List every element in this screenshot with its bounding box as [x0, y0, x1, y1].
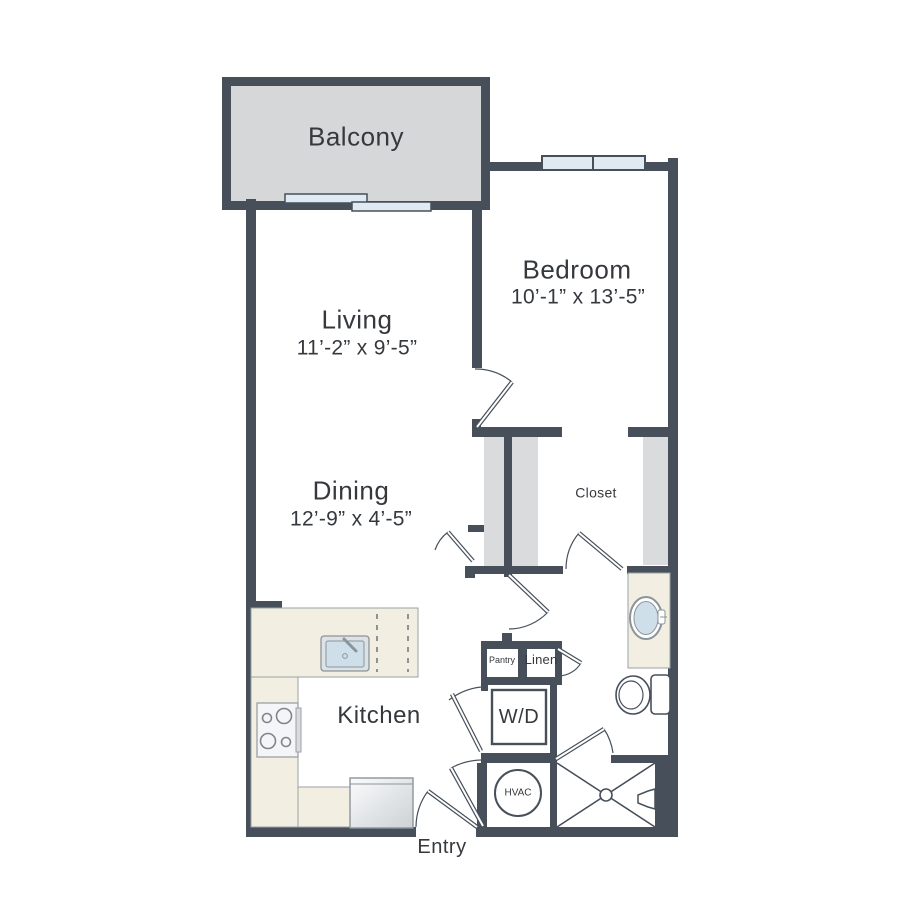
washer-dryer-label: W/D — [499, 706, 539, 728]
shower-room-door — [556, 729, 613, 759]
bedroom-window — [542, 156, 645, 170]
pantry-left-wall — [481, 649, 487, 677]
hall-wall-cap — [465, 566, 475, 578]
dining-dimensions: 12’-9” x 4’-5” — [290, 507, 412, 530]
balcony-label: Balcony — [308, 123, 404, 152]
hvac-label: HVAC — [504, 788, 531, 799]
right-wall — [668, 158, 678, 837]
hall-wall — [465, 566, 563, 574]
coat-closet-strip — [484, 437, 504, 566]
closet-divider-wall — [504, 437, 512, 577]
bathroom-door — [566, 533, 622, 569]
stove — [257, 703, 301, 757]
shower — [557, 763, 655, 827]
dining-label: Dining — [313, 477, 390, 506]
entry-label: Entry — [417, 836, 466, 858]
bedroom-south-wall-right — [628, 427, 678, 437]
wd-door — [449, 687, 481, 751]
closet-label: Closet — [575, 485, 616, 500]
coat-closet-door — [435, 532, 473, 561]
kitchen-counter-bottom — [298, 787, 350, 827]
toilet — [616, 675, 670, 714]
bottom-wall-right — [476, 827, 678, 837]
shower-drain — [600, 789, 612, 801]
pantry-top-wall — [481, 641, 562, 649]
bedroom-dimensions: 10’-1” x 13’-5” — [511, 285, 645, 308]
kitchen-sink — [321, 636, 369, 671]
shower-plumbing-wall — [655, 755, 678, 837]
refrigerator — [350, 778, 413, 828]
floor-plan-drawing — [0, 0, 900, 900]
living-bedroom-wall — [472, 204, 482, 368]
living-label: Living — [322, 306, 393, 335]
pantry-label: Pantry — [489, 656, 515, 666]
stove-handle — [296, 708, 301, 752]
pantry-bottom-wall — [481, 677, 562, 685]
walkin-closet-strip-right — [643, 437, 668, 565]
shower-head — [638, 789, 655, 809]
pantry-notch — [502, 633, 512, 641]
wd-left-stub — [481, 685, 488, 691]
hall-door — [509, 575, 548, 629]
linen-label: Linen — [525, 653, 558, 667]
floor-plan: Balcony Bedroom 10’-1” x 13’-5” Living 1… — [0, 0, 900, 900]
kitchen-label: Kitchen — [337, 703, 421, 729]
living-dimensions: 11’-2” x 9’-5” — [297, 336, 418, 359]
wd-bottom-wall — [481, 753, 557, 763]
bedroom-label: Bedroom — [523, 256, 632, 285]
shower-top-wall — [611, 755, 657, 763]
bedroom-south-wall-left — [472, 427, 562, 437]
bedroom-door — [475, 369, 512, 427]
walkin-closet-strip-left — [512, 437, 538, 566]
